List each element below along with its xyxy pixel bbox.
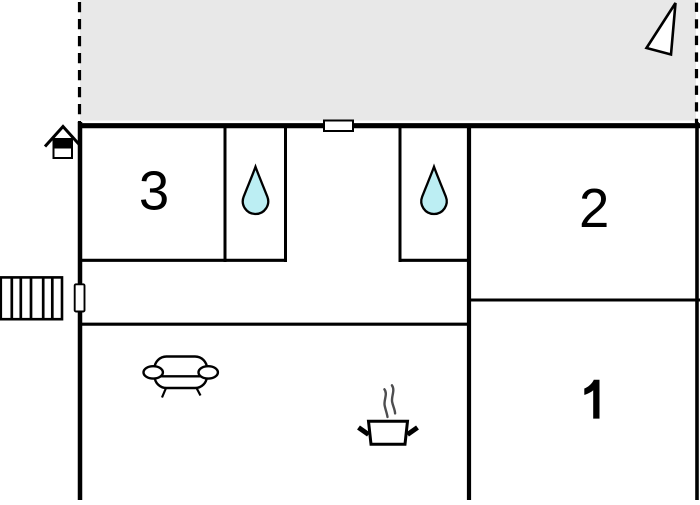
svg-text:3: 3 (139, 161, 169, 222)
svg-text:2: 2 (579, 178, 609, 239)
